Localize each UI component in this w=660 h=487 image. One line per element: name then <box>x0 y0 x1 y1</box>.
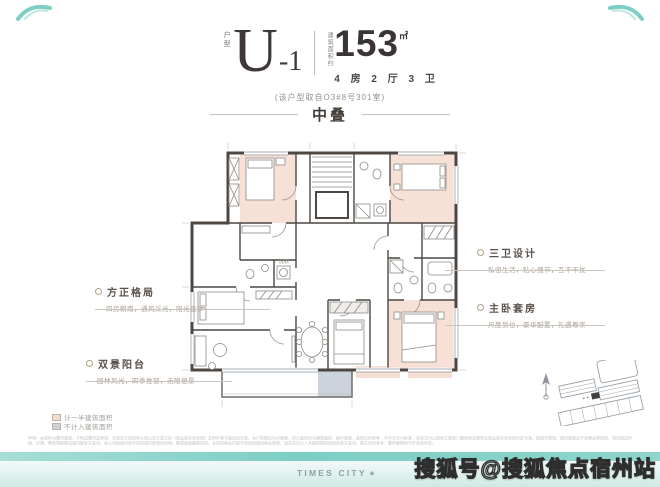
watermark: 搜狐号@搜狐焦点宿州站 <box>415 453 656 483</box>
disclaimer: 声明：本资料为要约邀请，不构成要约或承诺，买卖双方的权利义务以双方签订的《商品房… <box>28 436 632 451</box>
leader-line <box>86 381 232 382</box>
section-title-row: 中叠 <box>0 104 660 125</box>
area-value: 153 <box>334 26 399 61</box>
annotation-title: 方正格局 <box>107 284 155 299</box>
brand-mark-icon: ◆ <box>370 470 377 477</box>
area-vertical-label: 建筑面积约 <box>325 32 334 67</box>
bullet-icon <box>477 304 484 311</box>
legend-swatch <box>52 414 61 421</box>
key-plan-highlight <box>591 392 600 400</box>
room-label-laundry: 洗衣 <box>279 257 289 265</box>
key-plan <box>553 360 645 426</box>
legend-swatch <box>52 423 61 430</box>
area-unit: ㎡ <box>399 29 408 42</box>
unit-code: U -1 <box>233 26 302 77</box>
annotation-desc: 四房朝南，通风采光，阳光直享 <box>106 303 255 313</box>
unit-type-vertical-label: 户型 <box>221 31 231 49</box>
legend-label: 不计入建筑面积 <box>64 421 113 431</box>
title-divider <box>314 31 315 75</box>
section-title: 中叠 <box>312 104 348 125</box>
legend-item-excluded-area: 不计入建筑面积 <box>52 421 113 431</box>
rule-right <box>362 114 450 115</box>
annotation-title: 主卧套房 <box>489 300 537 315</box>
unit-code-main: U <box>233 26 278 77</box>
bullet-icon <box>95 288 102 295</box>
annotation-desc: 私密生活，贴心细节，互不干扰 <box>488 264 637 274</box>
leader-line <box>95 309 270 310</box>
brand-text: TIMES CITY <box>297 468 367 478</box>
annotation-desc: 尺度到位，豪华配置，礼遇尊崇 <box>488 319 637 329</box>
corner-accent-icon <box>16 3 52 21</box>
corner-accent-icon <box>608 3 644 21</box>
bullet-icon <box>477 249 484 256</box>
brand-logo: TIMES CITY ◆ <box>297 468 377 478</box>
disclaimer-text: 声明：本资料为要约邀请，不构成要约或承诺，买卖双方的权利义务以双方签订的《商品房… <box>28 436 632 446</box>
rule-left <box>210 114 298 115</box>
terrace-area <box>318 370 352 397</box>
unit-header: 户型 U -1 建筑面积约 153 ㎡ 4 房 2 厅 3 卫 (该户型取自O3… <box>0 26 660 103</box>
rooms-summary: 4 房 2 厅 3 卫 <box>334 70 439 85</box>
annotation-title: 三卫设计 <box>489 245 537 260</box>
annotation-desc: 园林风光，四季推窗，无限憩景 <box>97 375 246 385</box>
unit-code-suffix: -1 <box>279 48 302 76</box>
leader-line <box>445 270 605 271</box>
annotation-title: 双景阳台 <box>98 356 146 371</box>
stairwell <box>316 192 348 218</box>
leader-line <box>445 325 605 326</box>
source-note: (该户型取自O3#8号301室) <box>275 92 385 103</box>
bullet-icon <box>86 360 93 367</box>
